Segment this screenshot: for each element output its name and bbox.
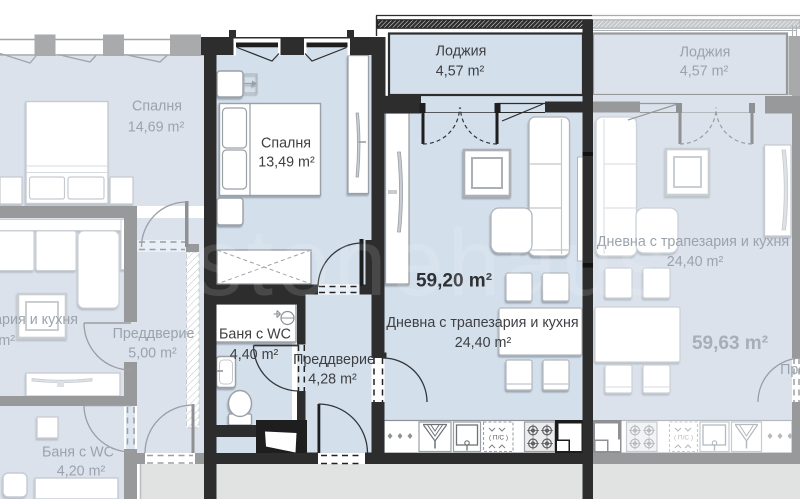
svg-text:4,57 m²: 4,57 m² bbox=[680, 64, 729, 80]
svg-text:( П/С ): ( П/С ) bbox=[489, 435, 508, 442]
svg-text:Лоджия: Лоджия bbox=[436, 44, 487, 60]
svg-text:4,57 m²: 4,57 m² bbox=[436, 64, 485, 80]
svg-text:Лоджия: Лоджия bbox=[680, 45, 731, 61]
svg-text:( П/С ): ( П/С ) bbox=[674, 435, 693, 442]
svg-text:stonehaus: stonehaus bbox=[195, 210, 669, 316]
svg-text:Спалня: Спалня bbox=[132, 99, 182, 115]
svg-text:14,69 m²: 14,69 m² bbox=[128, 120, 185, 136]
svg-text:13,49 m²: 13,49 m² bbox=[258, 155, 315, 171]
svg-text:Преддверие: Преддверие bbox=[293, 352, 375, 368]
svg-text:5,00 m²: 5,00 m² bbox=[128, 346, 177, 362]
svg-text:Дневна с трапезария и кухня: Дневна с трапезария и кухня bbox=[0, 312, 78, 328]
svg-text:Дневна с трапезария и кухня: Дневна с трапезария и кухня bbox=[386, 315, 578, 331]
svg-text:24,40 m²: 24,40 m² bbox=[0, 333, 15, 349]
svg-text:24,40 m²: 24,40 m² bbox=[455, 335, 512, 351]
svg-text:Баня с WC: Баня с WC bbox=[219, 327, 291, 343]
svg-text:Преддверие: Преддверие bbox=[780, 362, 800, 378]
svg-text:4,28 m²: 4,28 m² bbox=[308, 372, 357, 388]
svg-text:Спалня: Спалня bbox=[261, 136, 311, 152]
svg-text:Баня с WC: Баня с WC bbox=[42, 445, 114, 461]
svg-text:4,40 m²: 4,40 m² bbox=[230, 347, 279, 363]
svg-text:4,20 m²: 4,20 m² bbox=[57, 464, 106, 480]
svg-text:Преддверие: Преддверие bbox=[113, 326, 195, 342]
svg-text:59,63 m²: 59,63 m² bbox=[692, 333, 768, 354]
svg-text:24,40 m²: 24,40 m² bbox=[667, 254, 724, 270]
